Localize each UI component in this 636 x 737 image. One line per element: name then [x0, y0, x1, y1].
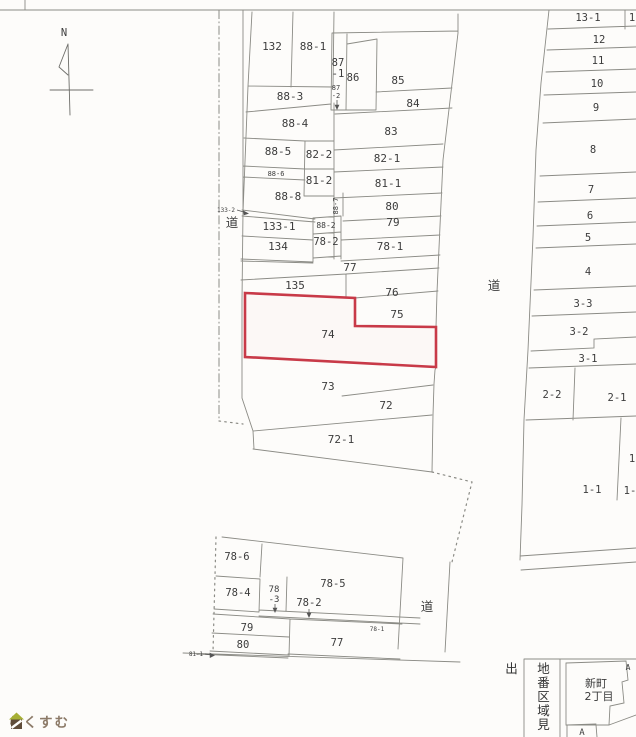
parcel-label-lower-80: 80	[237, 639, 250, 651]
parcel-label-lower-78-1: 78-1	[370, 626, 385, 633]
parcel-label-87-2-line1: 87	[332, 84, 340, 92]
parcel-label-lower-78-2: 78-2	[296, 597, 321, 609]
parcel-label-81-1: 81-1	[375, 177, 402, 190]
parcel-label-83: 83	[384, 125, 397, 138]
parcel-label-lower-78-3-line2: -3	[269, 595, 280, 605]
parcel-label-80: 80	[385, 200, 398, 213]
parcel-label-76: 76	[385, 286, 398, 299]
parcel-label-134: 134	[268, 240, 288, 253]
parcel-label-87-2-line2: -2	[332, 92, 340, 100]
parcel-label-85: 85	[391, 74, 404, 87]
road-label-lower: 道	[421, 599, 434, 614]
map-canvas: N 132 88-1 87 -1 87 -2 86 85 84 88-3 88-…	[0, 0, 636, 737]
parcel-label-86: 86	[347, 72, 360, 84]
selected-parcel-74-outline[interactable]	[245, 293, 436, 367]
parcel-label-lower-77: 77	[331, 637, 344, 649]
parcel-label-13-2-cut: 1	[629, 12, 635, 24]
parcel-label-82-1: 82-1	[374, 152, 401, 165]
parcel-label-lower-81-1: 81-1	[189, 652, 203, 658]
legend-marker-a-top: A	[626, 663, 631, 672]
right-column-boundaries	[520, 10, 636, 570]
parcel-label-lower-78-4: 78-4	[225, 587, 250, 599]
parcel-label-12: 12	[593, 34, 606, 46]
parcel-label-88-4: 88-4	[282, 117, 309, 130]
parcel-label-82-2: 82-2	[306, 148, 333, 161]
north-label: N	[61, 27, 67, 39]
parcel-label-8: 8	[590, 144, 596, 156]
upper-road-notch	[219, 421, 243, 424]
parcel-label-135: 135	[285, 279, 305, 292]
brand-logo: らくすむ	[8, 711, 70, 731]
cadastral-map-page: { "colors": {"highlight": "#c83a48", "li…	[0, 0, 636, 737]
parcel-label-132: 132	[262, 40, 282, 53]
parcel-label-133-1: 133-1	[262, 220, 295, 233]
parcel-label-1-cut: 1	[629, 453, 635, 465]
parcel-label-lower-79: 79	[241, 622, 254, 634]
parcel-label-7: 7	[588, 184, 594, 196]
parcel-label-88-6: 88-6	[268, 170, 285, 178]
parcel-label-10: 10	[591, 78, 604, 90]
parcel-label-74-selected: 74	[321, 328, 335, 341]
parcel-label-88-5: 88-5	[265, 145, 292, 158]
parcel-label-lower-78-5: 78-5	[320, 578, 345, 590]
road-label-left: 道	[226, 215, 239, 230]
parcel-label-9: 9	[593, 102, 599, 114]
parcel-label-2-2: 2-2	[543, 389, 562, 401]
sheet-border-lines	[0, 0, 636, 10]
parcel-label-78-2: 78-2	[313, 236, 338, 248]
parcel-label-4: 4	[585, 266, 591, 278]
parcel-label-84: 84	[406, 97, 420, 110]
parcel-label-lower-78-3-line1: 78	[269, 585, 280, 595]
parcel-label-1-1: 1-1	[583, 484, 602, 496]
parcel-label-3-1: 3-1	[579, 353, 598, 365]
parcel-label-88-8: 88-8	[275, 190, 302, 203]
north-arrow-icon: N	[50, 27, 93, 115]
road-connector-dotted	[432, 472, 472, 562]
parcel-label-88-1: 88-1	[300, 40, 327, 53]
house-icon	[8, 711, 25, 730]
parcel-label-88-3: 88-3	[277, 90, 304, 103]
parcel-label-3-2: 3-2	[570, 326, 589, 338]
parcel-label-6: 6	[587, 210, 593, 222]
parcel-label-77: 77	[343, 261, 356, 274]
legend-marker-a-bottom: A	[579, 728, 585, 737]
legend-district-line1: 新町	[585, 676, 607, 690]
parcel-label-79: 79	[386, 216, 399, 229]
parcel-label-88-7: 88-7	[332, 198, 340, 215]
parcel-label-72-1: 72-1	[328, 433, 355, 446]
parcel-label-133-2: 133-2	[217, 207, 235, 214]
legend-district-line2: 2丁目	[585, 690, 614, 703]
parcel-label-75: 75	[390, 308, 403, 321]
parcel-label-87-1-line2: -1	[332, 68, 345, 80]
road-label-center: 道	[488, 278, 501, 293]
parcel-label-1-2-cut: 1-	[624, 485, 636, 497]
parcel-label-81-2: 81-2	[306, 174, 333, 187]
legend-title-vertical: 地番区域見出	[526, 662, 558, 737]
parcel-label-5: 5	[585, 232, 591, 244]
lower-block-west-dotted-edge	[213, 537, 216, 652]
parcel-label-88-2: 88-2	[316, 221, 335, 230]
parcel-label-72: 72	[379, 399, 392, 412]
parcel-label-11: 11	[592, 55, 605, 67]
parcel-label-3-3: 3-3	[574, 298, 593, 310]
parcel-label-2-1: 2-1	[608, 392, 627, 404]
parcel-label-lower-78-6: 78-6	[224, 551, 249, 563]
parcel-label-78-1: 78-1	[377, 240, 404, 253]
parcel-label-73: 73	[321, 380, 334, 393]
parcel-label-13-1: 13-1	[575, 12, 600, 24]
